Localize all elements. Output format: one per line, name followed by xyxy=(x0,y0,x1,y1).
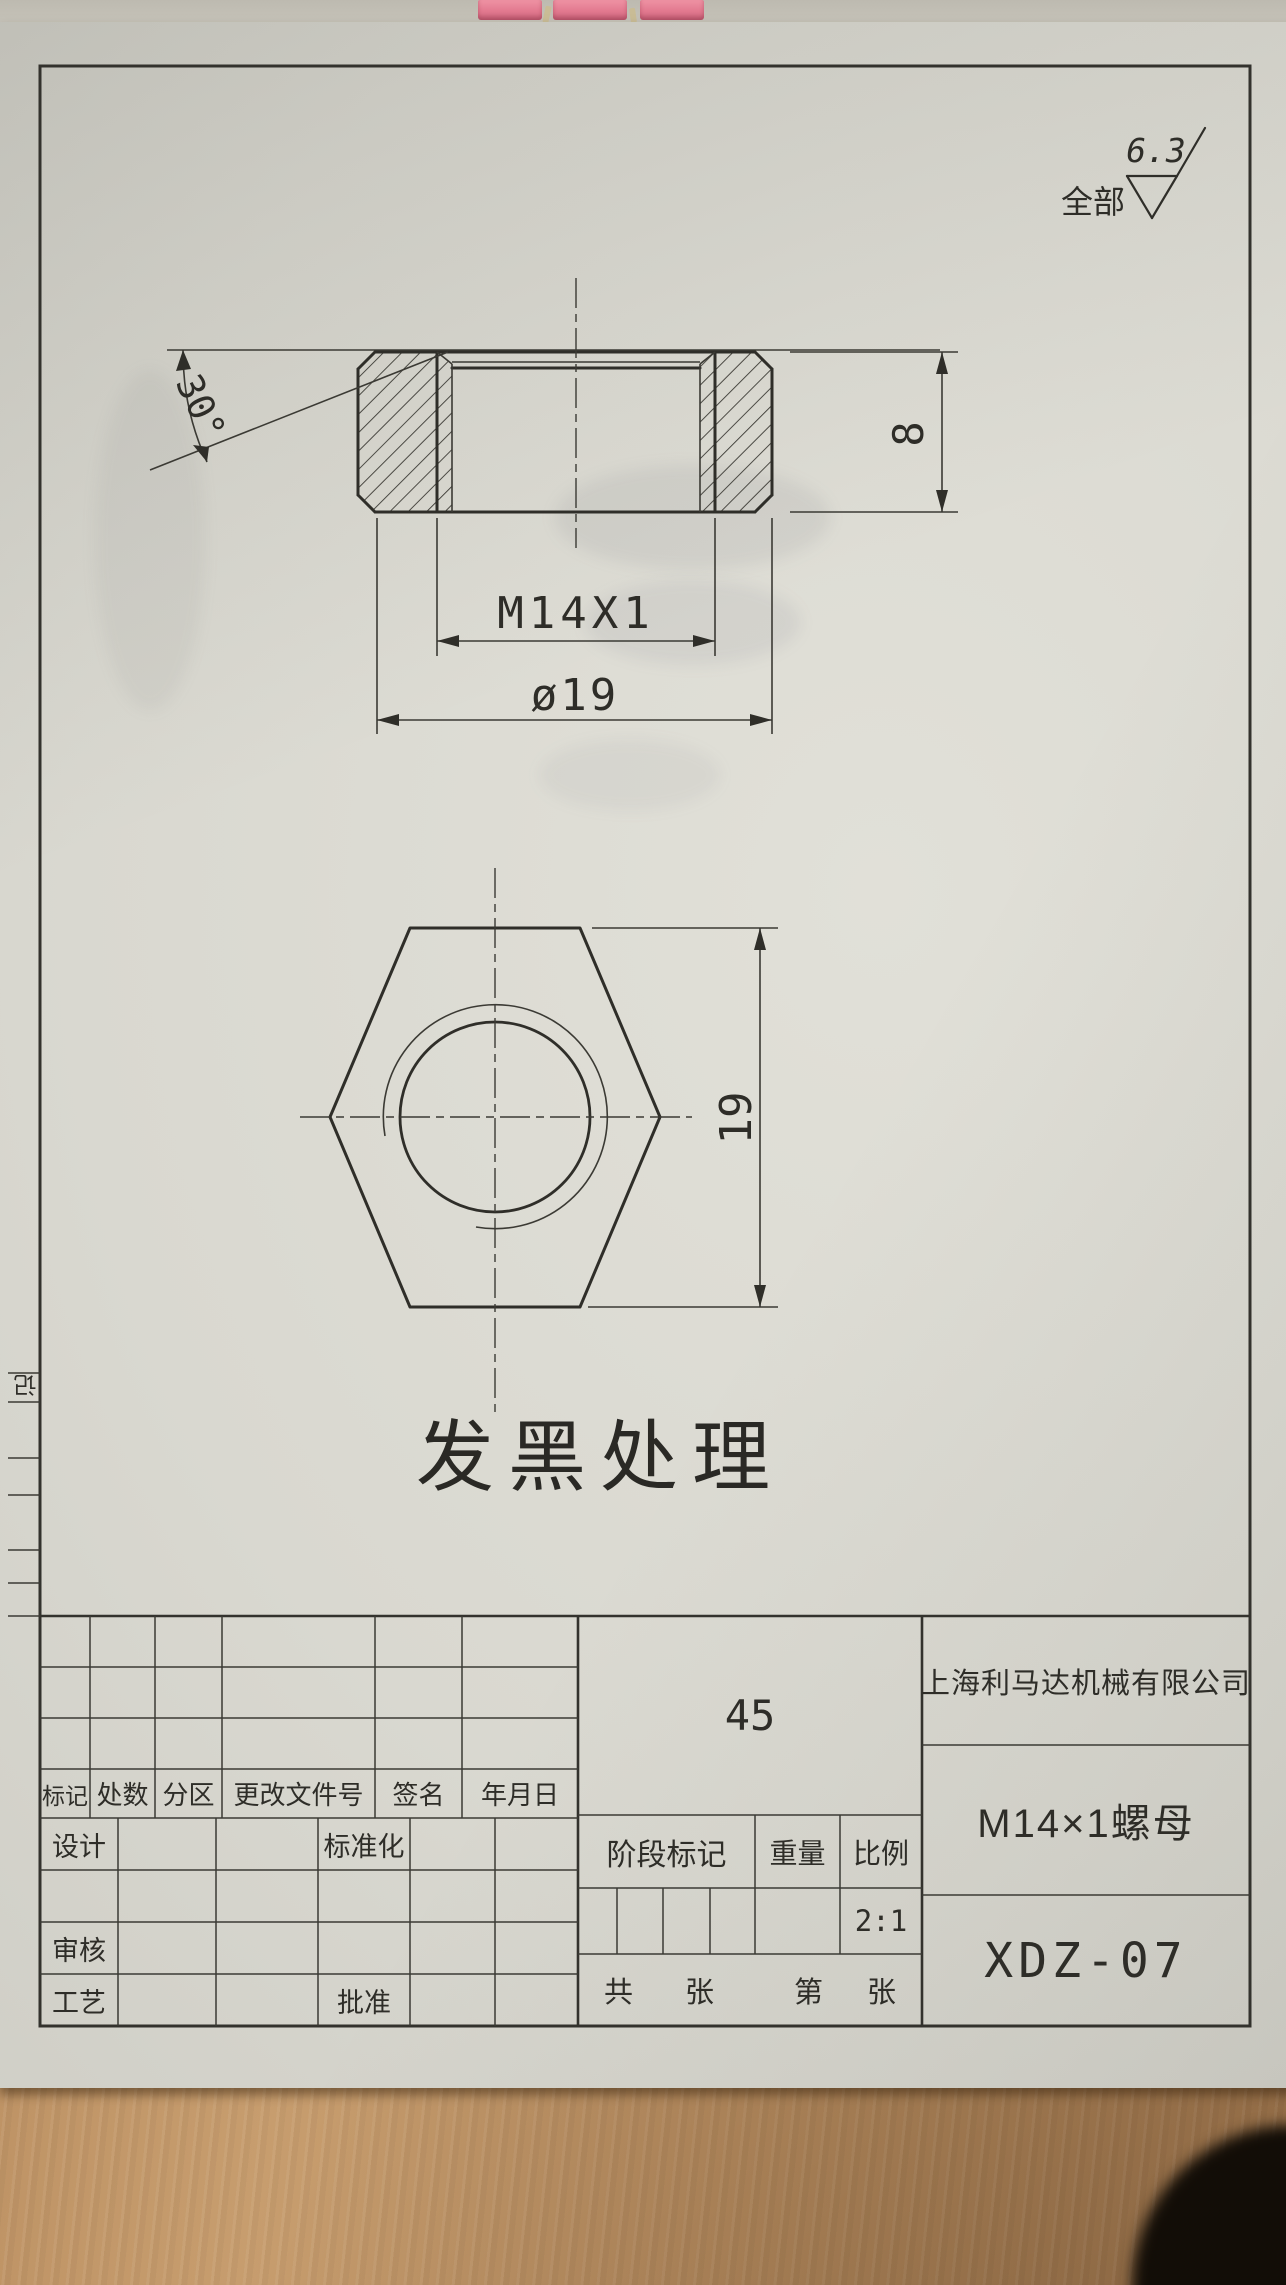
outer-diameter-dim: ø19 xyxy=(480,672,670,718)
revision-header-zone: 分区 xyxy=(155,1769,222,1818)
surface-finish-value: 6.3 xyxy=(1126,132,1186,168)
revision-header-signature: 签名 xyxy=(375,1769,462,1818)
part-name: M14×1螺母 xyxy=(922,1745,1250,1895)
photo-of-engineering-drawing: 全部 6.3 30° 8 M14X1 ø19 19 发黑处理 记 标记 处数 分… xyxy=(0,0,1286,2285)
margin-strip-lines xyxy=(8,1373,40,1616)
revision-header-mark: 标记 xyxy=(40,1769,90,1818)
revision-header-count: 处数 xyxy=(90,1769,155,1818)
thin-lines xyxy=(150,350,958,1307)
revision-header-docno: 更改文件号 xyxy=(222,1769,375,1818)
section-hatching xyxy=(358,352,772,512)
sheets-total-prefix: 共 xyxy=(604,1969,633,2011)
revision-header-date: 年月日 xyxy=(462,1769,578,1818)
treatment-note: 发黑处理 xyxy=(398,1402,802,1500)
material-value: 45 xyxy=(578,1616,922,1815)
binder-clip xyxy=(553,0,627,20)
weight-label: 重量 xyxy=(755,1815,840,1888)
scale-value: 2:1 xyxy=(840,1888,922,1954)
design-label: 设计 xyxy=(40,1818,118,1870)
thread-dim: M14X1 xyxy=(437,590,715,636)
margin-strip-label: 记 xyxy=(10,1372,40,1402)
drawing-content: 全部 6.3 30° 8 M14X1 ø19 19 发黑处理 记 标记 处数 分… xyxy=(0,22,1286,2088)
across-flats-dim: 19 xyxy=(710,1092,762,1144)
sheet-number-prefix: 第 xyxy=(794,1969,823,2011)
standardization-label: 标准化 xyxy=(318,1818,410,1870)
sheet-count-row: 共 张 第 张 xyxy=(578,1954,922,2026)
check-label: 审核 xyxy=(40,1922,118,1974)
stage-mark-label: 阶段标记 xyxy=(578,1815,755,1888)
sheets-total-suffix: 张 xyxy=(685,1969,714,2011)
binder-clip xyxy=(478,0,542,20)
sheet-number-suffix: 张 xyxy=(867,1969,896,2011)
drawing-number: XDZ-07 xyxy=(922,1895,1250,2026)
company-name: 上海利马达机械有限公司 xyxy=(922,1616,1250,1745)
approve-label: 批准 xyxy=(318,1974,410,2026)
dark-object-corner xyxy=(1132,2125,1286,2285)
scale-label: 比例 xyxy=(840,1815,922,1888)
binder-clip xyxy=(640,0,704,20)
height-dim: 8 xyxy=(884,410,932,458)
dimension-arrows xyxy=(176,350,948,1307)
surface-finish-scope: 全部 xyxy=(1056,182,1130,218)
process-label: 工艺 xyxy=(40,1974,118,2026)
drawing-sheet: 全部 6.3 30° 8 M14X1 ø19 19 发黑处理 记 标记 处数 分… xyxy=(0,22,1286,2088)
